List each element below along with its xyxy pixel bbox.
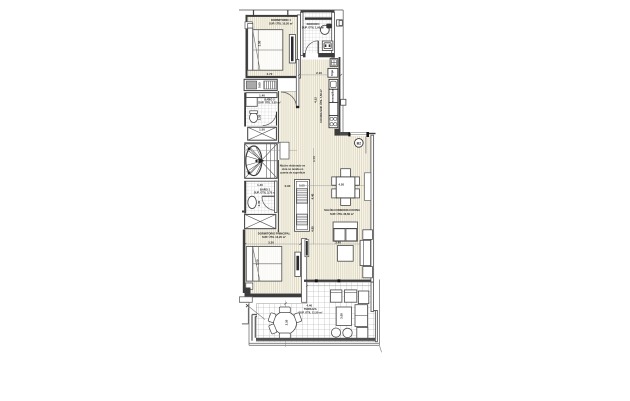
- svg-text:1.73: 1.73: [312, 156, 316, 162]
- svg-text:4.40: 4.40: [311, 193, 315, 199]
- svg-text:1.40: 1.40: [259, 94, 265, 98]
- svg-text:TERRAZA: TERRAZA: [304, 307, 317, 311]
- svg-text:0.90: 0.90: [285, 184, 291, 188]
- svg-text:4.40: 4.40: [306, 303, 312, 307]
- svg-text:1.40: 1.40: [257, 183, 263, 187]
- svg-text:4.20: 4.20: [338, 182, 344, 186]
- svg-text:B2: B2: [357, 141, 361, 145]
- svg-text:0.60: 0.60: [299, 183, 305, 187]
- svg-text:0.60: 0.60: [258, 82, 262, 88]
- svg-text:Núcleo elaborado en: Núcleo elaborado en: [280, 164, 306, 168]
- svg-text:2.30: 2.30: [257, 200, 261, 206]
- svg-text:4.95: 4.95: [311, 226, 315, 232]
- svg-text:frigo: frigo: [330, 69, 334, 75]
- svg-text:2.72: 2.72: [267, 72, 273, 76]
- svg-text:3.00: 3.00: [340, 313, 344, 319]
- svg-text:3.20: 3.20: [256, 259, 260, 265]
- svg-text:cuenta de superficie: cuenta de superficie: [280, 171, 306, 175]
- svg-text:DORMITORIO 1: DORMITORIO 1: [271, 18, 291, 22]
- svg-text:3.20: 3.20: [268, 240, 274, 244]
- svg-text:lavavajillas: lavavajillas: [330, 88, 334, 103]
- svg-text:2.20: 2.20: [257, 114, 261, 120]
- svg-text:2.10: 2.10: [316, 71, 322, 75]
- svg-text:DORMITORIO PRINCIPAL: DORMITORIO PRINCIPAL: [258, 231, 291, 235]
- svg-text:2.10: 2.10: [284, 319, 288, 325]
- svg-text:4.12: 4.12: [313, 97, 317, 103]
- svg-text:3.00: 3.00: [257, 40, 261, 46]
- svg-text:1.50: 1.50: [259, 127, 265, 131]
- svg-text:obra no tenida en: obra no tenida en: [282, 167, 304, 171]
